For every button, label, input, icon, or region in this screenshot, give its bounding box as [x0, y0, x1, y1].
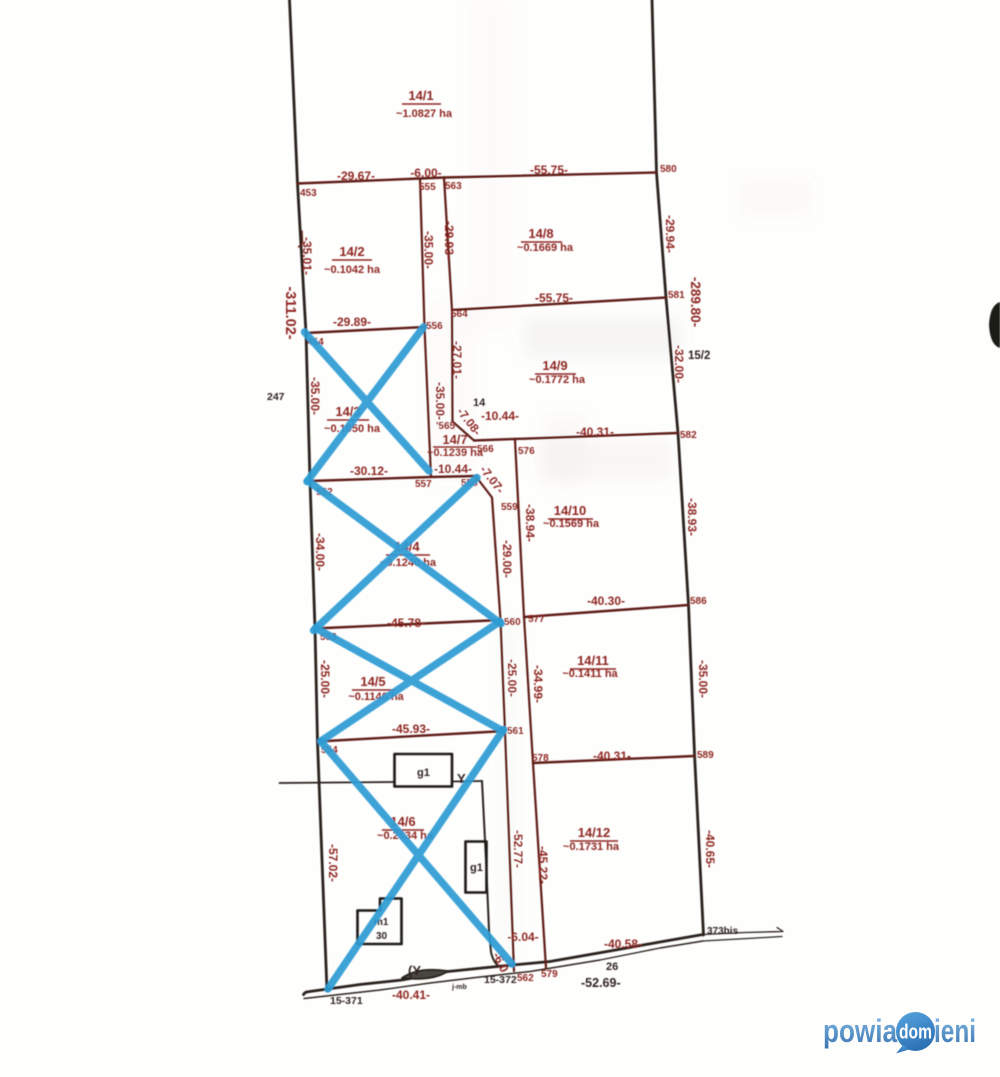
svg-text:-40.65-: -40.65- [703, 830, 717, 868]
svg-text:15-372: 15-372 [484, 974, 517, 986]
svg-text:-40.31-: -40.31- [576, 425, 614, 439]
svg-text:g1: g1 [417, 767, 430, 779]
svg-text:-52.77-: -52.77- [511, 830, 525, 868]
svg-text:560: 560 [504, 617, 521, 628]
svg-text:14/11: 14/11 [577, 653, 609, 668]
svg-text:556: 556 [426, 321, 443, 332]
svg-text:580: 580 [660, 164, 677, 175]
svg-text:576: 576 [518, 446, 535, 457]
svg-text:-25.00-: -25.00- [505, 659, 519, 697]
svg-text:~0.1669 ha: ~0.1669 ha [517, 242, 574, 254]
svg-text:14/5: 14/5 [360, 674, 385, 689]
svg-text:-34.00-: -34.00- [313, 533, 327, 571]
svg-text:453: 453 [300, 188, 317, 199]
svg-text:dom: dom [899, 1021, 932, 1044]
svg-text:-30.12-: -30.12- [350, 464, 388, 478]
svg-text:powia: powia [823, 1013, 898, 1049]
svg-text:581: 581 [668, 290, 685, 301]
svg-text:555: 555 [419, 182, 436, 193]
svg-text:14: 14 [473, 397, 486, 409]
svg-text:-25.00-: -25.00- [318, 660, 332, 698]
svg-text:~0.1731 ha: ~0.1731 ha [563, 841, 620, 853]
svg-text:-45.78-: -45.78- [387, 616, 425, 630]
svg-text:579: 579 [541, 969, 558, 980]
svg-text:557: 557 [415, 479, 432, 490]
svg-text:-6.04-: -6.04- [507, 930, 538, 944]
svg-text:~0.1411 ha: ~0.1411 ha [562, 668, 618, 680]
svg-text:g1: g1 [470, 862, 483, 874]
svg-text:30: 30 [376, 931, 388, 942]
svg-text:-55.75-: -55.75- [530, 163, 568, 177]
svg-text:-35.01-: -35.01- [300, 237, 314, 275]
svg-text:561: 561 [507, 726, 524, 737]
svg-text:-289.80-: -289.80- [688, 277, 703, 327]
svg-text:(Y: (Y [408, 963, 421, 978]
svg-text:-40.41-: -40.41- [392, 988, 430, 1002]
svg-text:~1.0827 ha: ~1.0827 ha [396, 108, 453, 120]
svg-text:247: 247 [267, 391, 285, 403]
svg-text:-10.44-: -10.44- [481, 409, 519, 423]
svg-text:589: 589 [697, 750, 714, 761]
svg-text:14/2: 14/2 [339, 244, 364, 259]
svg-text:-27.01-: -27.01- [450, 341, 464, 379]
svg-text:-35.00-: -35.00- [433, 382, 447, 420]
svg-text:14/10: 14/10 [554, 503, 587, 518]
svg-text:578: 578 [532, 753, 549, 764]
svg-text:566: 566 [477, 444, 494, 455]
svg-text:14/8: 14/8 [528, 226, 553, 241]
svg-text:-55.75-: -55.75- [535, 291, 573, 305]
svg-text:-57.02-: -57.02- [326, 844, 340, 882]
svg-text:-10.44-: -10.44- [434, 462, 472, 476]
svg-text:-35.00-: -35.00- [696, 660, 710, 698]
svg-text:586: 586 [690, 596, 707, 607]
svg-text:14/9: 14/9 [542, 358, 567, 373]
svg-text:563: 563 [445, 181, 462, 192]
svg-text:582: 582 [680, 430, 697, 441]
svg-text:-38.93-: -38.93- [685, 498, 699, 536]
svg-text:-45.93-: -45.93- [392, 722, 430, 736]
svg-text:-38.94-: -38.94- [523, 504, 537, 542]
svg-text:-34.99-: -34.99- [531, 665, 545, 703]
svg-text:-40.30-: -40.30- [587, 594, 625, 608]
svg-text:577: 577 [528, 614, 545, 625]
svg-text:-40.58-: -40.58- [604, 937, 642, 951]
svg-text:ieni: ieni [934, 1013, 976, 1049]
svg-text:-35.00-: -35.00- [422, 231, 436, 269]
svg-text:-29.89-: -29.89- [333, 315, 371, 329]
svg-text:-40.31-: -40.31- [593, 749, 631, 763]
svg-text:j-mb: j-mb [451, 984, 467, 991]
svg-text:-6.00-: -6.00- [410, 166, 441, 180]
svg-text:564: 564 [451, 309, 468, 320]
svg-text:562: 562 [517, 973, 534, 984]
svg-text:-29.93-: -29.93- [442, 221, 456, 259]
svg-text:~0.1042 ha: ~0.1042 ha [324, 264, 381, 276]
svg-text:15/2: 15/2 [688, 350, 710, 362]
svg-text:14/7: 14/7 [442, 432, 467, 447]
svg-text:559: 559 [501, 502, 518, 513]
svg-text:26: 26 [606, 961, 618, 973]
svg-text:~0.1569 ha: ~0.1569 ha [543, 518, 600, 530]
svg-text:14/12: 14/12 [578, 825, 611, 840]
svg-text:-29.67-: -29.67- [337, 169, 375, 183]
svg-text:-29.94-: -29.94- [663, 215, 677, 253]
svg-text:~0.1239 ha: ~0.1239 ha [427, 447, 484, 459]
svg-text:15-371: 15-371 [330, 995, 363, 1007]
svg-text:14/1: 14/1 [408, 88, 433, 103]
svg-text:-311.02-: -311.02- [282, 286, 298, 339]
svg-text:373bis: 373bis [707, 926, 739, 937]
svg-text:-29.00-: -29.00- [500, 540, 514, 578]
svg-text:-32.00-: -32.00- [672, 345, 686, 383]
svg-text:~0.1772 ha: ~0.1772 ha [529, 374, 586, 386]
svg-text:-45.22-: -45.22- [536, 846, 550, 884]
svg-text:-35.00-: -35.00- [308, 377, 322, 415]
svg-text:-52.69-: -52.69- [581, 976, 621, 990]
svg-text:'565: '565 [436, 421, 456, 432]
